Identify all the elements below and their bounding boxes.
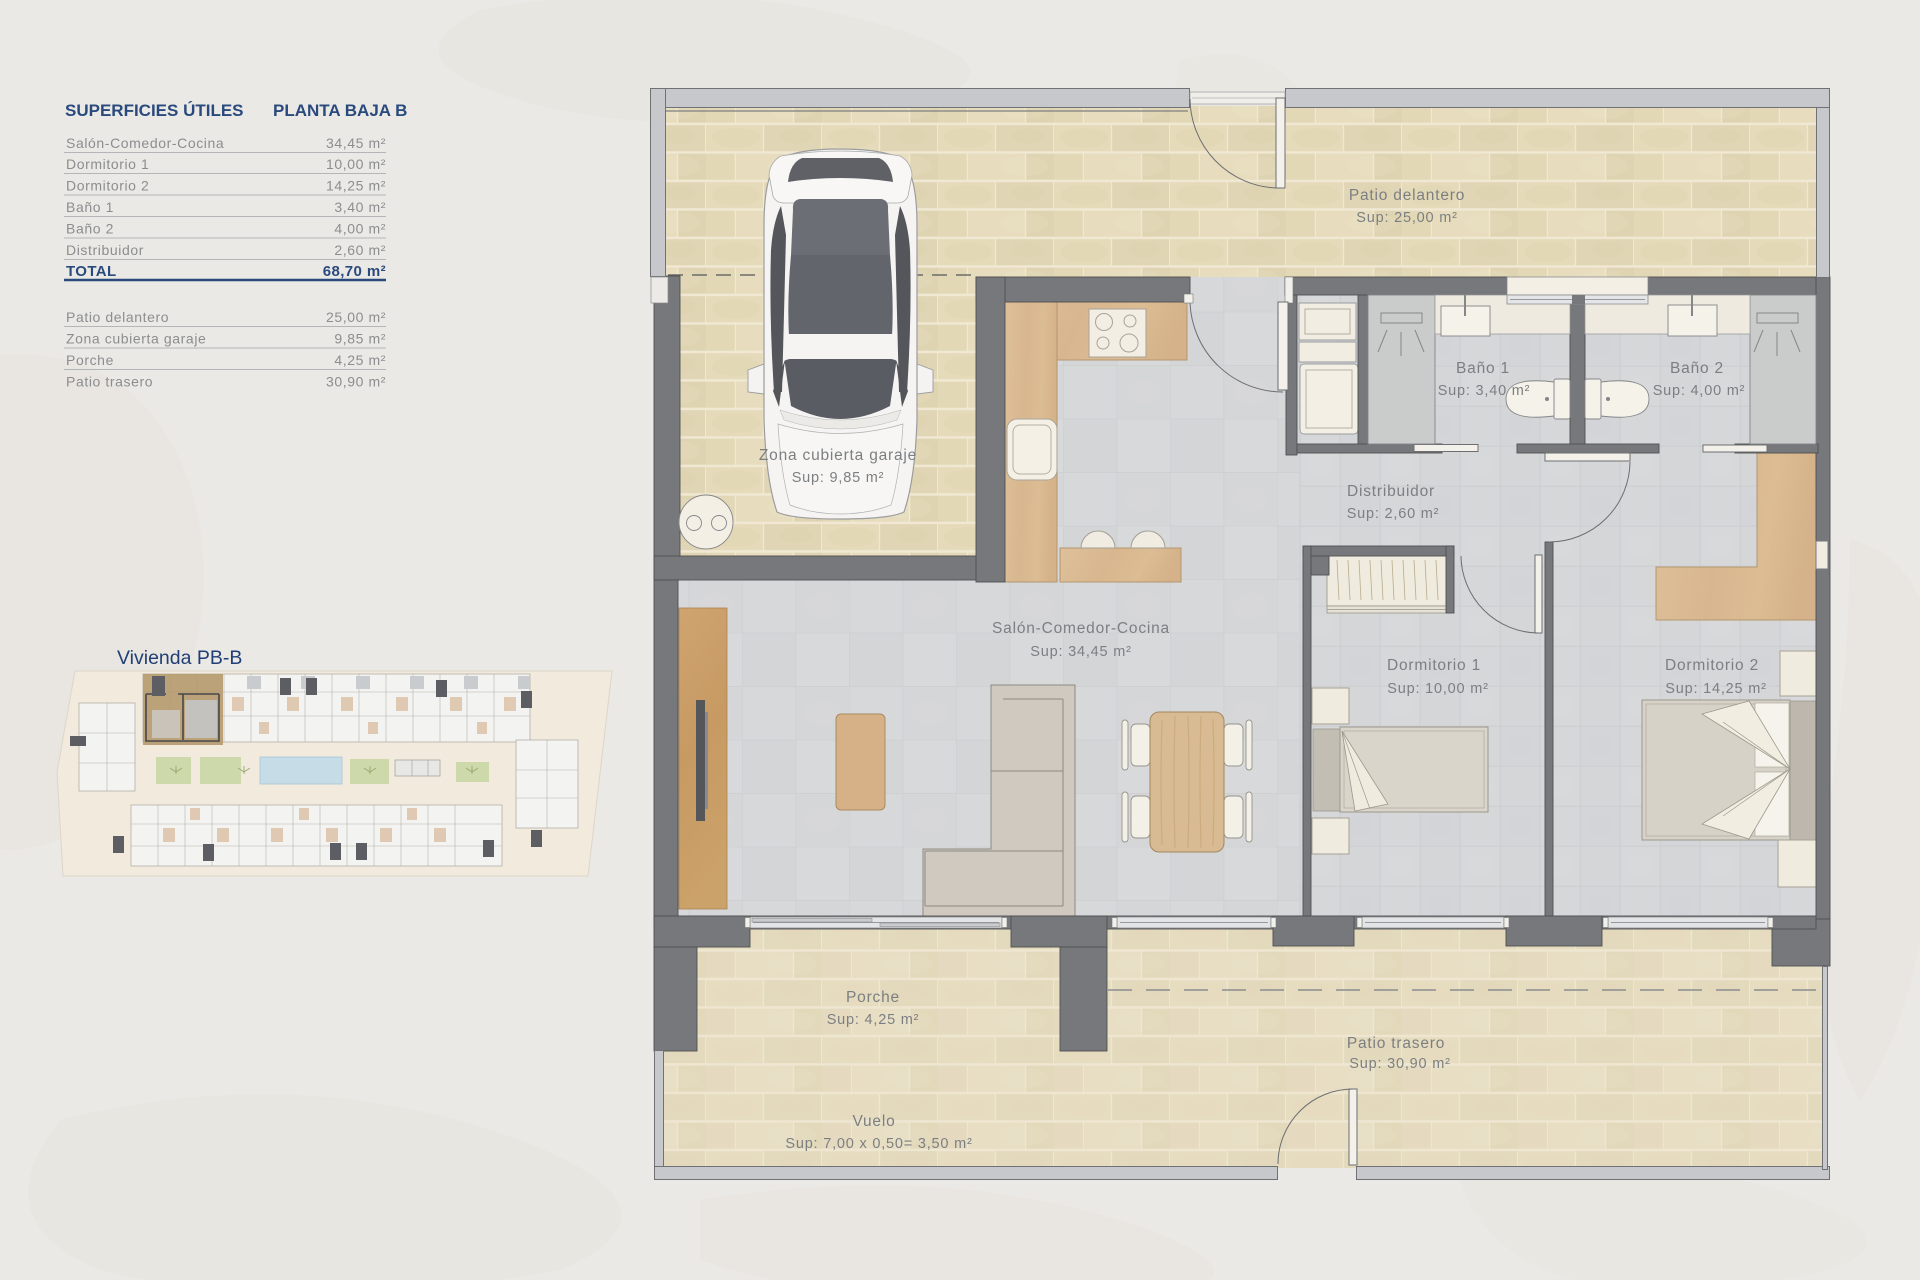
svg-text:Sup: 7,00 x 0,50= 3,50 m²: Sup: 7,00 x 0,50= 3,50 m² — [785, 1136, 972, 1152]
svg-text:Patio trasero: Patio trasero — [1347, 1035, 1445, 1052]
svg-text:TOTAL: TOTAL — [66, 263, 117, 280]
svg-text:4,25 m²: 4,25 m² — [334, 352, 386, 368]
svg-text:Zona cubierta garaje: Zona cubierta garaje — [66, 331, 206, 347]
svg-text:Sup: 10,00 m²: Sup: 10,00 m² — [1387, 681, 1488, 697]
svg-text:Distribuidor: Distribuidor — [1347, 483, 1435, 500]
svg-text:Sup: 2,60 m²: Sup: 2,60 m² — [1347, 506, 1440, 522]
svg-text:Sup: 3,40 m²: Sup: 3,40 m² — [1438, 383, 1531, 399]
svg-text:Vivienda PB-B: Vivienda PB-B — [117, 647, 242, 669]
svg-text:Salón-Comedor-Cocina: Salón-Comedor-Cocina — [992, 620, 1170, 637]
svg-text:Dormitorio 2: Dormitorio 2 — [1665, 657, 1759, 674]
svg-text:9,85 m²: 9,85 m² — [334, 331, 386, 347]
svg-text:3,40 m²: 3,40 m² — [334, 199, 386, 215]
svg-text:2,60 m²: 2,60 m² — [334, 242, 386, 258]
svg-text:Baño 2: Baño 2 — [66, 221, 114, 237]
svg-text:Patio trasero: Patio trasero — [66, 374, 153, 390]
svg-text:Sup: 4,25 m²: Sup: 4,25 m² — [827, 1012, 920, 1028]
svg-text:Sup: 34,45 m²: Sup: 34,45 m² — [1030, 644, 1131, 660]
svg-text:4,00 m²: 4,00 m² — [334, 221, 386, 237]
svg-text:14,25 m²: 14,25 m² — [326, 178, 386, 194]
svg-text:PLANTA BAJA B: PLANTA BAJA B — [273, 101, 407, 120]
svg-text:Porche: Porche — [846, 989, 900, 1006]
svg-text:Baño 2: Baño 2 — [1670, 360, 1724, 377]
svg-text:Distribuidor: Distribuidor — [66, 242, 144, 258]
svg-text:Sup: 30,90 m²: Sup: 30,90 m² — [1349, 1056, 1450, 1072]
svg-text:Sup: 25,00 m²: Sup: 25,00 m² — [1356, 210, 1457, 226]
svg-text:Dormitorio 2: Dormitorio 2 — [66, 178, 149, 194]
svg-text:Salón-Comedor-Cocina: Salón-Comedor-Cocina — [66, 135, 224, 151]
svg-text:Patio delantero: Patio delantero — [66, 309, 169, 325]
svg-text:10,00 m²: 10,00 m² — [326, 156, 386, 172]
svg-text:Baño 1: Baño 1 — [66, 199, 114, 215]
svg-text:25,00 m²: 25,00 m² — [326, 309, 386, 325]
svg-text:Sup: 4,00 m²: Sup: 4,00 m² — [1653, 383, 1746, 399]
svg-text:34,45 m²: 34,45 m² — [326, 135, 386, 151]
svg-text:SUPERFICIES ÚTILES: SUPERFICIES ÚTILES — [65, 101, 244, 120]
svg-text:Patio delantero: Patio delantero — [1349, 187, 1465, 204]
svg-text:Dormitorio 1: Dormitorio 1 — [1387, 657, 1481, 674]
svg-text:Sup: 14,25 m²: Sup: 14,25 m² — [1665, 681, 1766, 697]
svg-text:Baño 1: Baño 1 — [1456, 360, 1510, 377]
svg-text:Zona cubierta garaje: Zona cubierta garaje — [759, 447, 917, 464]
svg-text:Dormitorio 1: Dormitorio 1 — [66, 156, 149, 172]
svg-text:Porche: Porche — [66, 352, 114, 368]
svg-text:Sup: 9,85 m²: Sup: 9,85 m² — [792, 470, 885, 486]
svg-text:68,70 m²: 68,70 m² — [323, 263, 386, 280]
svg-text:Vuelo: Vuelo — [852, 1113, 895, 1130]
svg-text:30,90 m²: 30,90 m² — [326, 374, 386, 390]
